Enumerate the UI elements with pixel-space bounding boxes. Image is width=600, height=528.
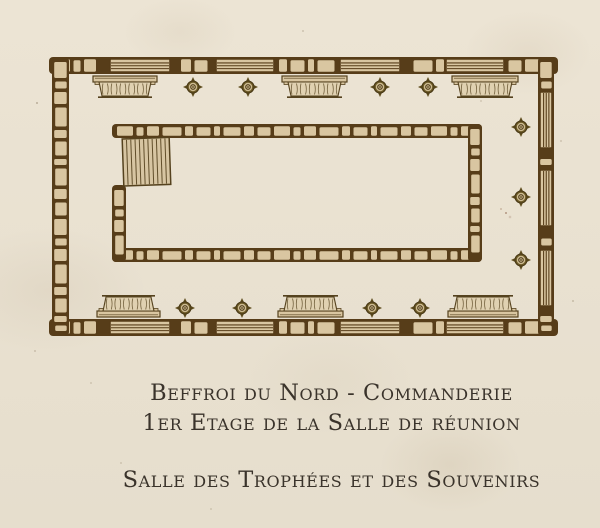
compass-boss-icon xyxy=(175,298,195,318)
compass-boss-icon xyxy=(511,250,531,270)
caption-line-1: Beffroi du Nord - Commanderie xyxy=(63,378,600,408)
floor-plan-svg xyxy=(0,0,600,376)
outer-wall-right xyxy=(538,57,554,336)
inner-wall-right xyxy=(468,124,482,262)
inner-wall-left xyxy=(112,185,126,262)
map-caption: Beffroi du Nord - Commanderie 1er Etage … xyxy=(63,378,600,495)
parchment-page: Beffroi du Nord - Commanderie 1er Etage … xyxy=(0,0,600,528)
compass-boss-icon xyxy=(238,77,258,97)
outer-wall-bottom xyxy=(49,319,558,336)
compass-boss-icon xyxy=(362,298,382,318)
outer-wall-left xyxy=(52,57,69,336)
inner-wall-top xyxy=(112,124,482,138)
compass-boss-icon xyxy=(511,187,531,207)
outer-wall-top xyxy=(49,57,558,74)
compass-boss-icon xyxy=(232,298,252,318)
display-case-icon xyxy=(452,76,518,97)
display-case-icon xyxy=(93,76,157,97)
display-case-icon xyxy=(278,296,343,317)
staircase-icon xyxy=(122,137,171,186)
display-case-icon xyxy=(97,296,160,317)
inner-wall-bottom xyxy=(112,248,482,262)
compass-boss-icon xyxy=(370,77,390,97)
compass-boss-icon xyxy=(418,77,438,97)
display-case-icon xyxy=(282,76,347,97)
display-case-icon xyxy=(448,296,518,317)
caption-line-2: 1er Etage de la Salle de réunion xyxy=(63,408,600,438)
compass-boss-icon xyxy=(410,298,430,318)
caption-line-3: Salle des Trophées et des Souvenirs xyxy=(63,465,600,495)
compass-boss-icon xyxy=(183,77,203,97)
compass-boss-icon xyxy=(511,117,531,137)
